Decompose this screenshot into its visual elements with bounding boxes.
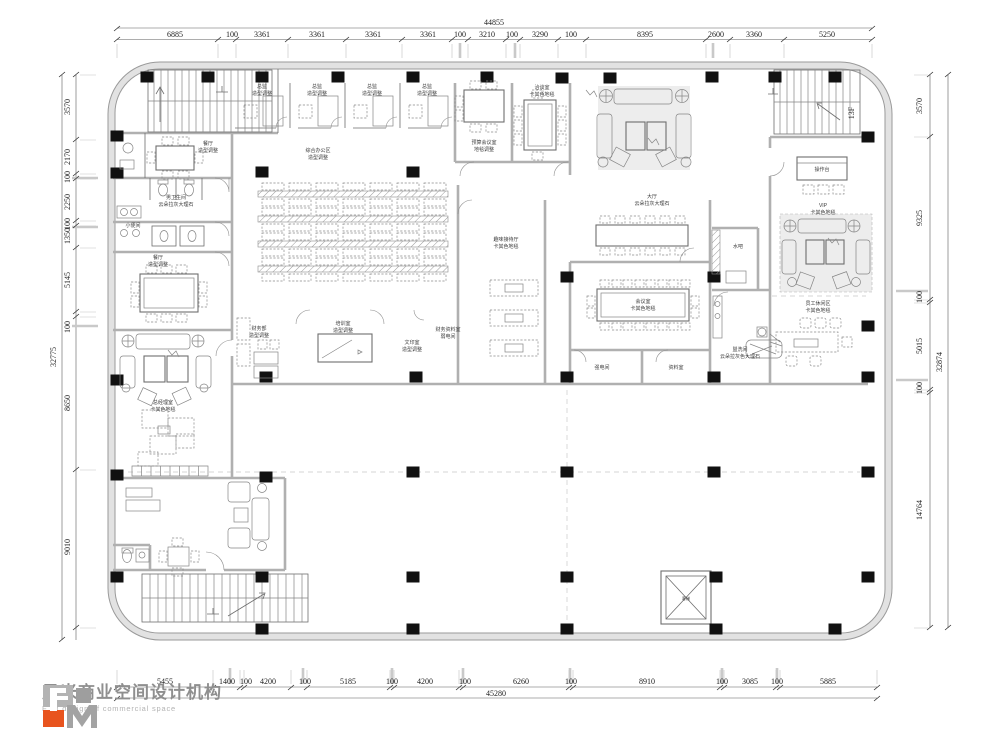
structural-columns [111, 72, 875, 635]
dining2-furniture [131, 265, 207, 322]
label-mens-wc-b: 云朵拉灰大理石 [158, 201, 193, 208]
label-conference: 会议室 [635, 298, 650, 305]
building-shell [108, 62, 892, 640]
label-print-room: 文印室 [404, 339, 419, 346]
dim-right-0: 3570 [915, 98, 924, 114]
wc-fixtures [117, 180, 204, 246]
dim-bottom-3: 4200 [260, 677, 276, 686]
conference-furniture [587, 280, 699, 330]
label-budget-meeting-b: 地毯调整 [474, 146, 494, 153]
label-fun-reception: 趣味接待厅 [493, 236, 518, 243]
label-exec1-b: 造型调整 [252, 90, 272, 97]
dim-right-total: 32874 [935, 352, 944, 372]
negotiation-furniture [514, 90, 566, 160]
dim-left-7: 100 [63, 321, 72, 333]
label-gm-office: 总经理室 [153, 399, 173, 406]
dim-bottom-15: 5885 [820, 677, 836, 686]
label-fun-reception-b: 卡其色地毯 [493, 243, 518, 250]
dim-right-1: 9325 [915, 210, 924, 226]
label-open-office: 综合办公区 [305, 147, 330, 154]
dimension-labels-bottom: 45280 5455 1400 100 4200 100 5185 100 42… [157, 677, 836, 698]
dim-top-3: 3361 [309, 30, 325, 39]
label-exec4: 总监 [422, 83, 432, 90]
dimension-lines [59, 26, 951, 701]
label-staff-b: 卡其色地毯 [805, 307, 830, 314]
dim-bottom-12: 100 [716, 677, 728, 686]
exec-desks [244, 96, 448, 126]
label-fin-archive-b: 弱电间 [440, 333, 455, 340]
dim-top-12: 2600 [708, 30, 724, 39]
floor-plan-drawing: 44855 6885 100 3361 3361 3361 3361 100 3… [0, 0, 1000, 735]
gallery-tables [490, 280, 538, 356]
counter-furniture [797, 157, 847, 194]
label-hall-b: 云朵拉灰大理石 [634, 200, 669, 207]
label-print-room-b: 造型调整 [402, 346, 422, 353]
label-training-b: 造型调整 [333, 327, 353, 334]
dim-bottom-9: 6260 [513, 677, 529, 686]
dim-bottom-4: 100 [299, 677, 311, 686]
label-dining2: 餐厅 [153, 254, 163, 261]
label-washroom: 盥洗间 [732, 346, 747, 353]
dim-top-9: 3290 [532, 30, 548, 39]
dim-left-3: 2250 [63, 194, 72, 210]
label-training: 培训室 [335, 320, 350, 327]
dim-right-3: 5015 [915, 338, 924, 354]
label-exec3: 总监 [367, 83, 377, 90]
dim-bottom-8: 100 [459, 677, 471, 686]
label-finance: 财务部 [251, 325, 266, 332]
label-fin-archive: 财务资料室 [435, 326, 460, 333]
floor-plan-canvas: 44855 6885 100 3361 3361 3361 3361 100 3… [0, 0, 1000, 735]
label-washroom-b: 云朵拉灰色大理石 [720, 353, 760, 360]
fm-logo-mark [42, 684, 98, 730]
dim-bottom-13: 3085 [742, 677, 758, 686]
dining1-furniture [120, 137, 203, 179]
dim-top-6: 100 [454, 30, 466, 39]
label-urinal: 小便间 [125, 222, 140, 229]
label-exec2: 总监 [312, 83, 322, 90]
dim-right-2: 100 [915, 291, 924, 303]
label-dining1: 餐厅 [203, 140, 213, 147]
dim-left-8: 8650 [63, 395, 72, 411]
staff-area-furniture [770, 318, 852, 366]
dim-left-9: 9010 [63, 539, 72, 555]
dim-bottom-2: 100 [240, 677, 252, 686]
label-exec1: 总监 [257, 83, 267, 90]
dim-top-13: 3360 [746, 30, 762, 39]
dim-top-1: 100 [226, 30, 238, 39]
label-finance-b: 造型调整 [249, 332, 269, 339]
label-exec4-b: 造型调整 [417, 90, 437, 97]
dimension-labels-right: 32874 3570 9325 100 5015 100 14764 [915, 98, 944, 520]
label-dining2-b: 造型调整 [148, 261, 168, 268]
label-archive: 资料室 [668, 364, 683, 371]
dim-top-total: 44855 [484, 18, 504, 27]
grid-dashed-lines [128, 296, 866, 624]
label-counter: 操作台 [814, 166, 829, 173]
dim-left-5: 1350 [63, 228, 72, 244]
label-vip: VIP [819, 203, 828, 209]
bottom-left-room-furniture [122, 466, 269, 576]
upper-table [596, 216, 688, 255]
dim-bottom-6: 100 [386, 677, 398, 686]
label-elevator: 客梯 [682, 595, 690, 601]
dim-bottom-11: 8910 [639, 677, 655, 686]
dim-top-11: 8395 [637, 30, 653, 39]
label-water-bar: 水吧 [733, 243, 743, 250]
dim-left-2: 100 [63, 171, 72, 183]
dim-left-total: 32775 [49, 347, 58, 367]
dim-right-5: 14764 [915, 500, 924, 520]
training-furniture [318, 334, 372, 362]
label-staff: 员工休闲区 [805, 300, 830, 307]
dim-top-8: 100 [506, 30, 518, 39]
dim-bottom-14: 100 [771, 677, 783, 686]
dim-right-4: 100 [915, 382, 924, 394]
budget-meeting-furniture [455, 81, 504, 132]
label-negotiation-b: 卡其色地毯 [529, 91, 554, 98]
dim-left-6: 5145 [63, 272, 72, 288]
label-negotiation: 洽谈室 [534, 84, 549, 91]
label-gm-office-b: 卡其色地毯 [150, 406, 175, 413]
dim-bottom-10: 100 [565, 677, 577, 686]
floor-tag: 13F [847, 106, 856, 119]
dim-top-4: 3361 [365, 30, 381, 39]
dim-top-0: 6885 [167, 30, 183, 39]
label-dining1-b: 造型调整 [198, 147, 218, 154]
dim-top-10: 100 [565, 30, 577, 39]
dim-top-2: 3361 [254, 30, 270, 39]
dim-left-0: 3570 [63, 99, 72, 115]
dim-top-7: 3210 [479, 30, 495, 39]
dim-left-1: 2170 [63, 149, 72, 165]
dim-top-14: 5250 [819, 30, 835, 39]
dimension-labels-top: 44855 6885 100 3361 3361 3361 3361 100 3… [167, 18, 835, 39]
stair-top-right [774, 70, 860, 134]
stair-bottom-left [142, 574, 308, 622]
label-hall: 大厅 [647, 193, 657, 200]
dim-bottom-total: 45280 [486, 689, 506, 698]
door-swings [206, 117, 784, 570]
dim-bottom-5: 5185 [340, 677, 356, 686]
dim-bottom-7: 4200 [417, 677, 433, 686]
workstation-rows [258, 183, 448, 281]
dimension-labels-left: 32775 3570 2170 100 2250 100 1350 5145 1… [49, 99, 72, 555]
label-vip-b: 卡其色地毯 [810, 209, 835, 216]
dim-top-5: 3361 [420, 30, 436, 39]
label-exec3-b: 造型调整 [362, 90, 382, 97]
label-mens-wc: 男卫生间 [166, 194, 186, 201]
furniture [117, 81, 870, 576]
label-strong-power: 强电间 [594, 364, 609, 371]
label-open-office-b: 造型调整 [308, 154, 328, 161]
label-budget-meeting: 预算会议室 [471, 139, 496, 146]
label-conference-b: 卡其色地毯 [630, 305, 655, 312]
label-exec2-b: 造型调整 [307, 90, 327, 97]
company-logo: 风米商业空间设计机构 F. M design of commercial spa… [42, 684, 222, 713]
